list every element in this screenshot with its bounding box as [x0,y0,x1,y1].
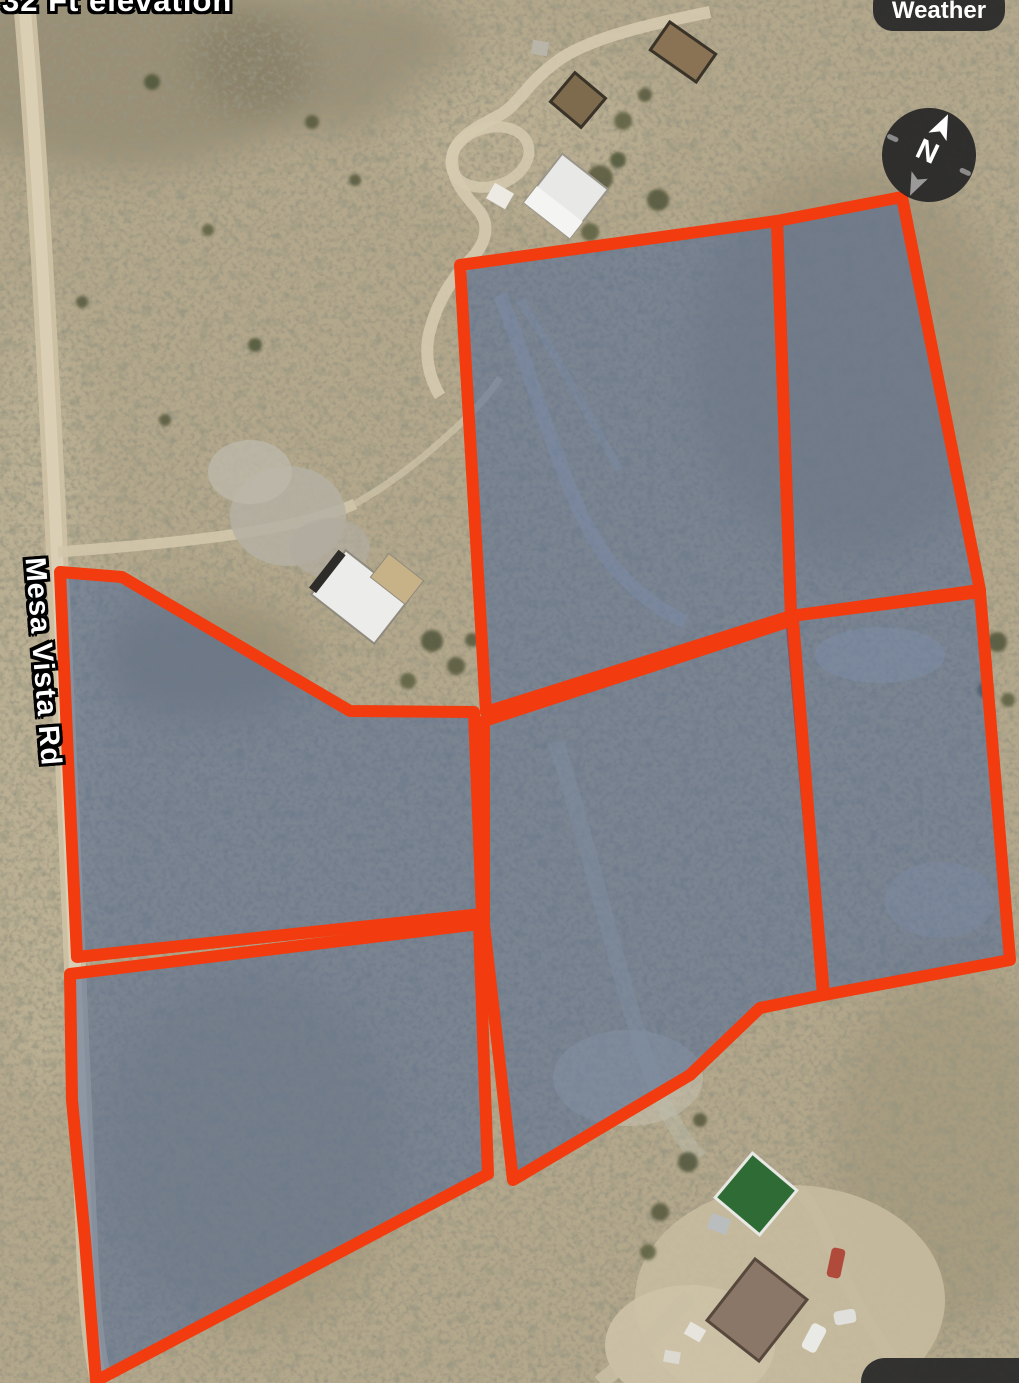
compass[interactable]: N [881,107,977,203]
elevation-label: 32 Ft elevation [2,0,232,19]
bottom-right-button[interactable] [861,1358,1019,1383]
weather-button[interactable]: Weather [873,0,1005,31]
satellite-imagery [0,0,1019,1383]
map-view[interactable]: 32 Ft elevation Mesa Vista Rd Weather N [0,0,1019,1383]
